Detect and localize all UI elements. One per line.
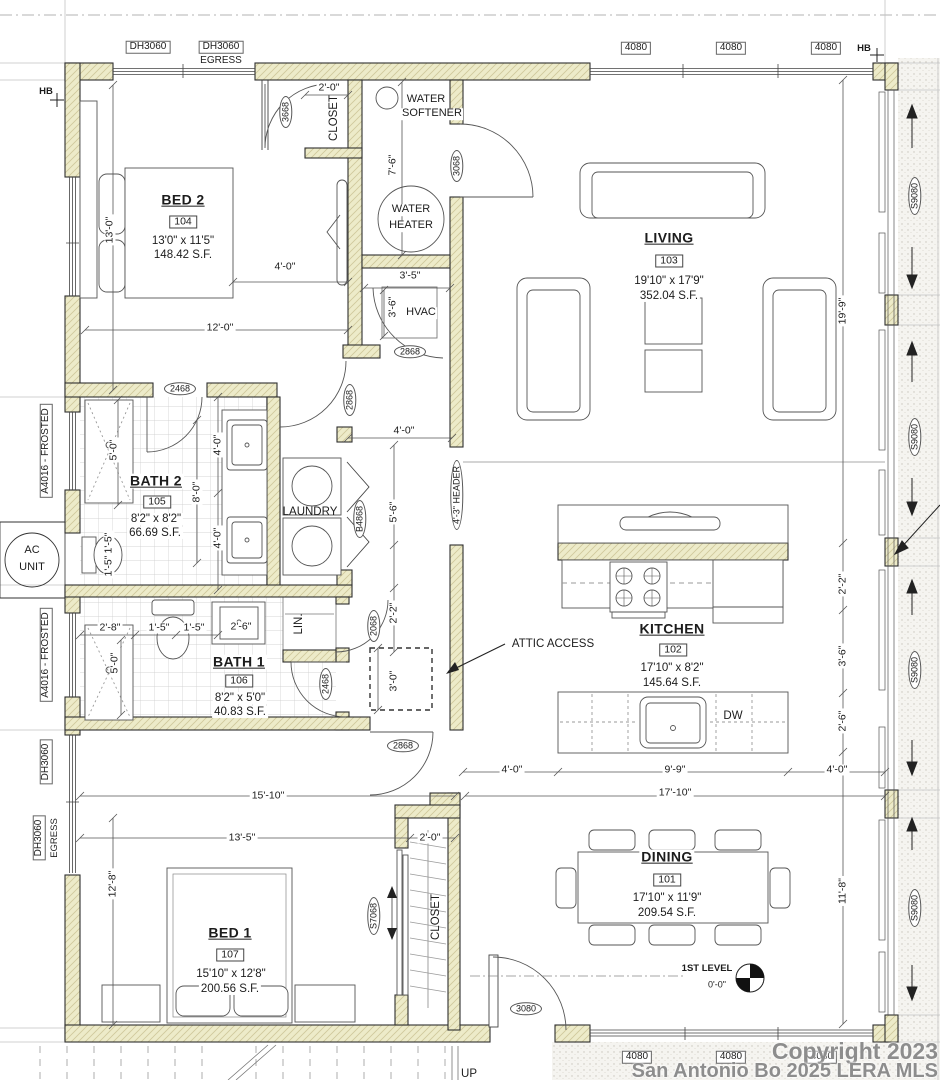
ac-unit-label: AC <box>23 545 40 557</box>
room-size-bed1: 15'10" x 12'8" <box>194 968 267 980</box>
dim-3-6: 3'-6" <box>387 295 398 320</box>
window-tag-a4016: A4016 - FROSTED <box>40 404 53 498</box>
room-tag-bed2: 104 <box>169 215 197 228</box>
water-softener-label: WATER <box>406 94 447 106</box>
room-area-kitchen: 145.64 S.F. <box>641 677 703 689</box>
dim-3-5: 3'-5" <box>398 270 423 281</box>
room-area-dining: 209.54 S.F. <box>636 907 698 919</box>
floorplan-linework <box>0 0 940 1080</box>
dim-9-9: 9'-9" <box>663 764 688 775</box>
dim-1-5: 1'-5" <box>147 622 172 633</box>
window-tag-4080: 4080 <box>811 42 841 55</box>
closet-label: CLOSET <box>328 95 340 141</box>
water-softener-label2: SOFTENER <box>401 108 463 120</box>
dim-19-9: 19'-9" <box>837 296 848 327</box>
dim-2-8: 2'-8" <box>98 622 123 633</box>
room-size-bed2: 13'0" x 11'5" <box>150 235 216 247</box>
dim-2-6: 2'-6" <box>229 621 254 632</box>
dim-13-5: 13'-5" <box>227 832 258 843</box>
dim-5-6: 5'-6" <box>388 500 399 525</box>
dim-2-6-kitchen: 2'-6" <box>837 709 848 734</box>
room-tag-bath1: 106 <box>225 674 253 687</box>
room-area-bath1: 40.83 S.F. <box>212 706 268 718</box>
laundry-label: LAUNDRY <box>283 506 338 518</box>
room-tag-dining: 101 <box>653 873 681 886</box>
room-area-bath2: 66.69 S.F. <box>127 527 183 539</box>
egress-label: EGRESS <box>200 56 242 67</box>
room-name-bed2: BED 2 <box>159 193 206 208</box>
dim-12-8: 12'-8" <box>107 869 118 900</box>
dim-1-5: 1'-5" <box>103 531 114 556</box>
room-tag-bath2: 105 <box>143 495 171 508</box>
hvac-label: HVAC <box>405 307 437 319</box>
dim-2-0-closet: 2'-0" <box>418 832 443 843</box>
dim-4-0-vanity2: 4'-0" <box>212 526 223 551</box>
dim-5-0-bath1: 5'-0" <box>109 651 120 676</box>
linen-closet-label: LIN. <box>293 613 305 634</box>
room-area-bed1: 200.56 S.F. <box>199 983 261 995</box>
dim-4-0: 4'-0" <box>273 261 298 272</box>
deck-boards <box>40 1045 458 1080</box>
dim-7-6: 7'-6" <box>387 153 398 178</box>
watermark-line2: San Antonio Bo 2025 LERA MLS <box>632 1060 938 1080</box>
room-name-bath1: BATH 1 <box>211 655 267 670</box>
dim-2-2-kitchen: 2'-2" <box>837 572 848 597</box>
window-tag-dh3060: DH3060 <box>40 740 53 785</box>
water-heater-label2: HEATER <box>388 220 434 232</box>
dim-1-5: 1'-5" <box>103 554 114 579</box>
dim-4-0-vanity: 4'-0" <box>212 433 223 458</box>
egress-label: EGRESS <box>50 818 60 858</box>
dim-1-5: 1'-5" <box>182 622 207 633</box>
closet-label: CLOSET <box>430 894 442 940</box>
room-tag-kitchen: 102 <box>659 643 687 656</box>
first-level-label: 1ST LEVEL <box>682 964 733 974</box>
window-tag-dh3060: DH3060 <box>199 41 244 54</box>
room-size-kitchen: 17'10" x 8'2" <box>638 662 705 674</box>
room-name-bath2: BATH 2 <box>128 474 184 489</box>
dim-2-2: 2'-2" <box>388 601 399 626</box>
room-size-bath2: 8'2" x 8'2" <box>129 513 183 525</box>
dim-4-0-kitchen: 4'-0" <box>500 764 525 775</box>
room-size-bath1: 8'2" x 5'0" <box>213 692 267 704</box>
floor-plan-sheet: DH3060 DH3060 EGRESS 4080 4080 4080 HB H… <box>0 0 940 1080</box>
hose-bib-label: HB <box>39 87 53 97</box>
dim-8-0: 8'-0" <box>191 480 202 505</box>
room-name-dining: DINING <box>639 850 694 865</box>
room-name-bed1: BED 1 <box>206 926 253 941</box>
ac-unit-label2: UNIT <box>18 562 46 574</box>
room-area-living: 352.04 S.F. <box>638 290 700 302</box>
window-tag-dh3060-egress: DH3060 <box>33 816 46 861</box>
dim-3-0-attic: 3'-0" <box>388 669 399 694</box>
water-heater-label: WATER <box>391 204 432 216</box>
window-tag-4080: 4080 <box>716 42 746 55</box>
room-tag-living: 103 <box>655 254 683 267</box>
dim-11-8: 11'-8" <box>837 876 848 906</box>
dim-13-0: 13'-0" <box>104 215 115 246</box>
window-tag-4080: 4080 <box>621 42 651 55</box>
dim-4-0-kitchen2: 4'-0" <box>825 764 850 775</box>
up-label: UP <box>461 1068 477 1080</box>
level-elevation: 0'-0" <box>708 980 726 989</box>
dim-17-10: 17'-10" <box>657 787 694 798</box>
window-tag-dh3060: DH3060 <box>126 41 171 54</box>
dim-4-0-hall: 4'-0" <box>392 425 417 436</box>
room-size-dining: 17'10" x 11'9" <box>631 892 704 904</box>
attic-access-label: ATTIC ACCESS <box>512 638 594 650</box>
dim-3-6-kitchen: 3'-6" <box>837 644 848 669</box>
room-size-living: 19'10" x 17'9" <box>632 275 705 287</box>
hose-bib-label: HB <box>857 44 871 54</box>
room-tag-bed1: 107 <box>216 948 244 961</box>
window-tag-a4016: A4016 - FROSTED <box>40 608 53 702</box>
room-name-kitchen: KITCHEN <box>637 622 706 637</box>
room-area-bed2: 148.42 S.F. <box>152 249 214 261</box>
dishwasher-label: DW <box>723 710 742 722</box>
dim-15-10: 15'-10" <box>250 790 287 801</box>
dim-12-0: 12'-0" <box>205 322 236 333</box>
room-name-living: LIVING <box>642 231 695 246</box>
dim-5-0: 5'-0" <box>108 438 119 463</box>
dim-2-0: 2'-0" <box>317 82 342 93</box>
